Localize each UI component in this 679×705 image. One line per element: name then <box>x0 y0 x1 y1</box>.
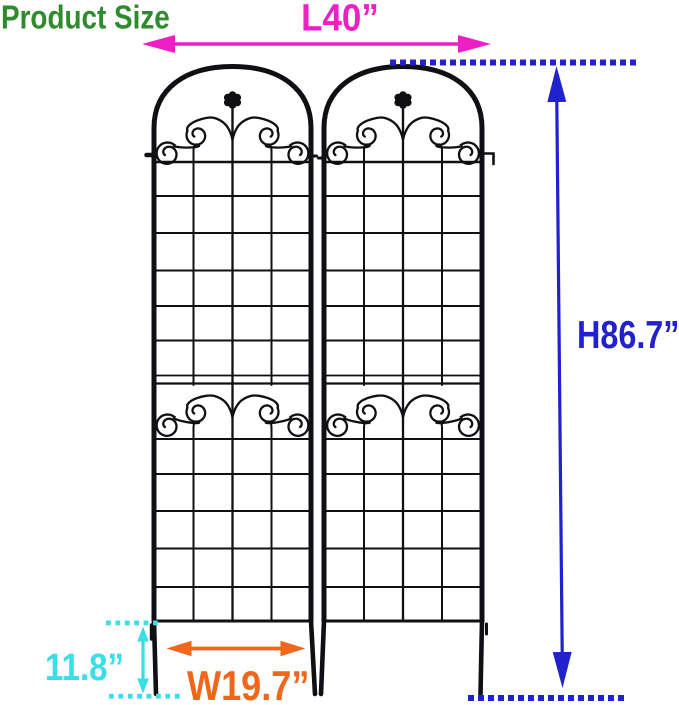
svg-text:W19.7”: W19.7” <box>187 664 309 705</box>
svg-text:11.8”: 11.8” <box>45 646 124 689</box>
svg-text:Product Size: Product Size <box>1 0 170 36</box>
svg-text:H86.7”: H86.7” <box>577 313 679 356</box>
svg-text:L40”: L40” <box>301 0 379 39</box>
